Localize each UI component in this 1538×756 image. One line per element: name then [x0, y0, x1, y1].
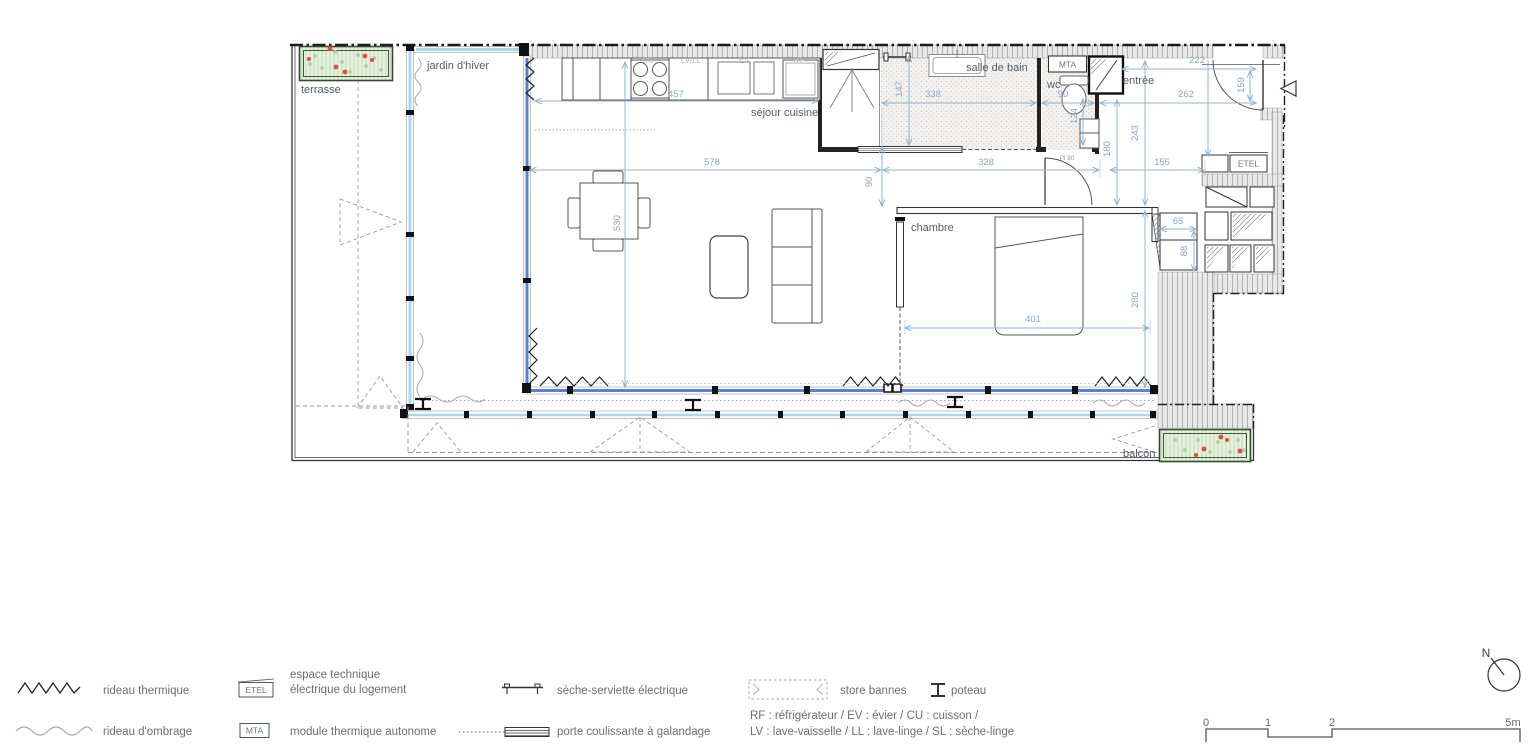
legend-etel-line2: électrique du logement	[290, 684, 407, 696]
dim-90-sejour: 90	[864, 177, 875, 188]
floorplan-canvas: 457 578 530 90 147 338 90 124 222 262 15…	[0, 0, 1538, 756]
dim-338: 338	[925, 89, 941, 100]
sofa	[772, 209, 822, 323]
poteau-icon	[685, 400, 701, 410]
door-label-pl80: Pl 80	[1060, 155, 1075, 162]
room-label-entree: entrée	[1123, 75, 1154, 87]
dim-222: 222	[1189, 55, 1205, 66]
legend-rideau-ombrage: rideau d'ombrage	[103, 726, 192, 738]
dim-243: 243	[1130, 125, 1141, 141]
chambre-sliding-door	[897, 222, 904, 307]
dim-88: 88	[1179, 246, 1190, 257]
sdb-sliding-door	[858, 147, 962, 153]
legend-poteau: poteau	[951, 685, 986, 697]
dim-65: 65	[1173, 216, 1184, 227]
appliance-label-rf: RF	[794, 56, 805, 65]
appliance-label-ev: EV	[739, 56, 750, 65]
scale-0: 0	[1203, 717, 1209, 729]
scale-bar: 0 1 2 5m	[1203, 717, 1521, 742]
shower	[823, 50, 879, 113]
wc-door-arc	[1045, 158, 1092, 205]
porte-coulissante-icon	[459, 728, 549, 737]
terrasse-planter	[300, 46, 393, 80]
poteau-legend-icon	[931, 684, 945, 696]
dim-457: 457	[668, 89, 684, 100]
legend-store-bannes: store bannes	[840, 685, 907, 697]
dim-155: 155	[1154, 157, 1170, 168]
poteau-icon	[947, 397, 963, 407]
room-label-chambre: chambre	[911, 222, 954, 234]
dim-328: 328	[978, 157, 994, 168]
room-label-salle-de-bain: salle de bain	[966, 62, 1028, 74]
chambre-wall	[897, 208, 1155, 214]
legend-etel-line1: espace technique	[290, 669, 380, 681]
appliance-label-cu: CU	[642, 56, 654, 65]
dining-table	[568, 171, 650, 251]
architectural-floor-plan: 457 578 530 90 147 338 90 124 222 262 15…	[0, 0, 1538, 756]
svg-text:MTA: MTA	[246, 726, 264, 736]
legend: rideau thermique rideau d'ombrage ETEL e…	[16, 669, 1014, 738]
dim-401: 401	[1025, 314, 1041, 325]
room-label-sejour-cuisine: séjour cuisine	[751, 107, 818, 119]
dim-578: 578	[704, 157, 720, 168]
rideau-ombrage-icon	[16, 727, 92, 735]
balcon-planter	[1160, 430, 1251, 462]
dim-280: 280	[1130, 292, 1141, 308]
store-bannes-icon	[749, 680, 827, 699]
rideau-ombrage-line	[415, 58, 421, 106]
legend-rideau-thermique: rideau thermique	[103, 685, 189, 697]
scale-2: 2	[1329, 717, 1335, 729]
scale-5m: 5m	[1505, 717, 1520, 729]
coffee-table	[710, 236, 748, 298]
rideau-thermique-icon	[18, 683, 80, 693]
legend-mta: module thermique autonome	[290, 726, 436, 738]
poteaux	[415, 397, 963, 410]
north-label: N	[1482, 646, 1491, 660]
legend-seche-serviette: sèche-serviette électrique	[557, 685, 688, 697]
svg-text:ETEL: ETEL	[245, 685, 267, 695]
dim-159: 159	[1236, 77, 1247, 93]
furniture	[568, 171, 1083, 335]
entrance-arrow-icon	[1281, 81, 1296, 96]
dim-180: 180	[1102, 141, 1113, 157]
legend-porte-coulissante: porte coulissante à galandage	[557, 726, 710, 738]
room-label-terrasse: terrasse	[301, 84, 341, 96]
dim-530: 530	[612, 215, 623, 231]
room-label-wc: wc	[1046, 79, 1061, 91]
dim-147: 147	[894, 81, 905, 97]
scale-1: 1	[1265, 717, 1271, 729]
room-label-jardin-dhiver: jardin d'hiver	[426, 60, 489, 72]
dim-124: 124	[1069, 108, 1080, 124]
dim-262: 262	[1178, 89, 1194, 100]
legend-abbr-line1: RF : réfrigérateur / EV : évier / CU : c…	[750, 710, 979, 722]
mta-label: MTA	[1059, 60, 1077, 70]
seche-serviette-icon	[502, 684, 543, 694]
etel-label: ETEL	[1238, 159, 1260, 169]
floor-plan: 457 578 530 90 147 338 90 124 222 262 15…	[290, 43, 1296, 462]
legend-abbr-line2: LV : lave-vaisselle / LL : lave-linge / …	[750, 726, 1014, 738]
north-arrow: N	[1482, 646, 1520, 691]
room-label-balcon: balcon	[1123, 448, 1155, 460]
appliance-label-lvll: LV/LL	[681, 56, 702, 65]
